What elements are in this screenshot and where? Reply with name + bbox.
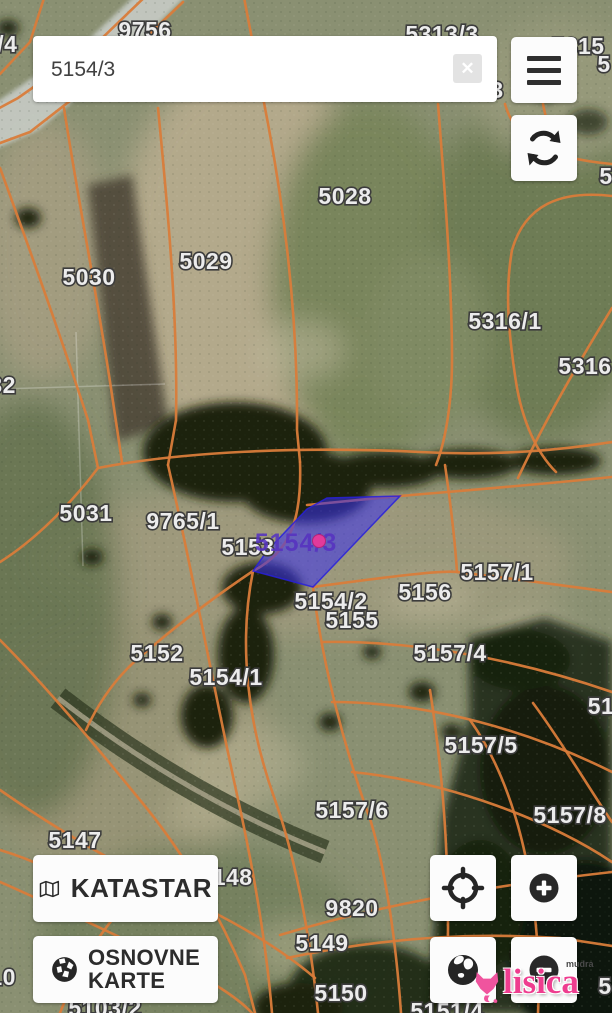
katastar-layer-button[interactable]: KATASTAR — [33, 855, 218, 922]
katastar-label: KATASTAR — [71, 873, 212, 904]
parcel-label: 5 — [597, 51, 610, 77]
parcel-label: 510 — [0, 964, 16, 990]
watermark-brand: lisica — [503, 962, 579, 1002]
parcel-label: 5152 — [130, 640, 183, 666]
parcel-label: 51 — [588, 693, 612, 719]
parcel-label: 5028 — [318, 183, 371, 209]
zoom-in-button[interactable] — [511, 855, 577, 921]
parcel-label: 5316 — [558, 353, 611, 379]
parcel-label: 05/4 — [0, 31, 17, 57]
parcel-label: 5157/4 — [413, 640, 486, 666]
parcel-label: 5029 — [179, 248, 232, 274]
search-input[interactable] — [49, 36, 443, 104]
parcel-label: 032 — [0, 372, 16, 398]
close-icon: ✕ — [460, 59, 474, 79]
plus-icon — [511, 855, 577, 921]
refresh-button[interactable] — [511, 115, 577, 181]
hamburger-icon — [527, 52, 561, 88]
basemaps-layer-button[interactable]: OSNOVNE KARTE — [33, 936, 218, 1003]
clear-search-button[interactable]: ✕ — [453, 54, 482, 83]
parcel-label: 5150 — [314, 980, 367, 1006]
parcel-label: 5157/6 — [315, 797, 388, 823]
parcel-label: 5155 — [325, 607, 378, 633]
search-bar: ✕ — [33, 36, 497, 102]
map-icon — [39, 876, 60, 902]
parcel-label: 5157/8 — [533, 802, 606, 828]
parcel-label: 5030 — [62, 264, 115, 290]
parcel-label: 5149 — [295, 930, 348, 956]
osnovne-label-line1: OSNOVNE — [88, 947, 200, 969]
fox-icon — [473, 970, 501, 1006]
crosshair-icon — [430, 855, 496, 921]
parcel-label: 5 — [599, 163, 612, 189]
selection-marker-dot — [313, 535, 326, 548]
watermark: mudra lisica — [473, 958, 612, 1013]
osnovne-label-line2: KARTE — [88, 970, 200, 992]
parcel-label: 5157/1 — [460, 559, 533, 585]
menu-button[interactable] — [511, 37, 577, 103]
parcel-label: 5147 — [48, 827, 101, 853]
parcel-label: 5156 — [398, 579, 451, 605]
parcel-label: 5316/1 — [468, 308, 541, 334]
app-screen: 975605/45313/353155355028502950305316/15… — [0, 0, 612, 1013]
parcel-label: 9820 — [325, 895, 378, 921]
parcel-label: 5031 — [59, 500, 112, 526]
parcel-label: 5154/1 — [189, 664, 262, 690]
locate-button[interactable] — [430, 855, 496, 921]
parcel-label: 5157/5 — [444, 732, 517, 758]
parcel-label: 9765/1 — [146, 508, 219, 534]
globe-icon — [51, 956, 78, 983]
refresh-icon — [511, 115, 577, 181]
